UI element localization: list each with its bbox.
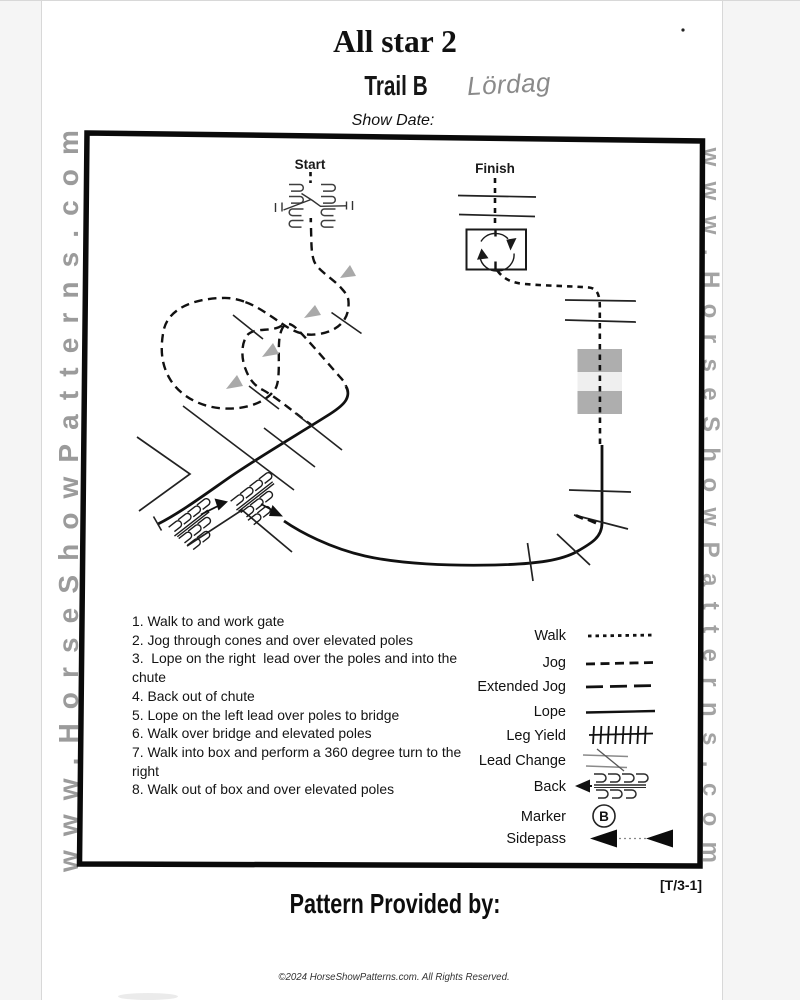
svg-text:Jog: Jog xyxy=(543,655,566,671)
svg-text:Lead Change: Lead Change xyxy=(479,753,566,769)
svg-text:Walk: Walk xyxy=(534,628,566,644)
svg-text:Marker: Marker xyxy=(521,809,566,825)
svg-text:Finish: Finish xyxy=(475,161,515,176)
svg-text:Start: Start xyxy=(295,157,326,172)
svg-text:Back: Back xyxy=(534,779,567,795)
svg-text:Leg Yield: Leg Yield xyxy=(506,728,566,744)
svg-text:Extended Jog: Extended Jog xyxy=(477,679,566,695)
svg-text:Sidepass: Sidepass xyxy=(506,831,566,847)
svg-text:Lope: Lope xyxy=(534,704,566,720)
svg-text:B: B xyxy=(599,809,609,824)
